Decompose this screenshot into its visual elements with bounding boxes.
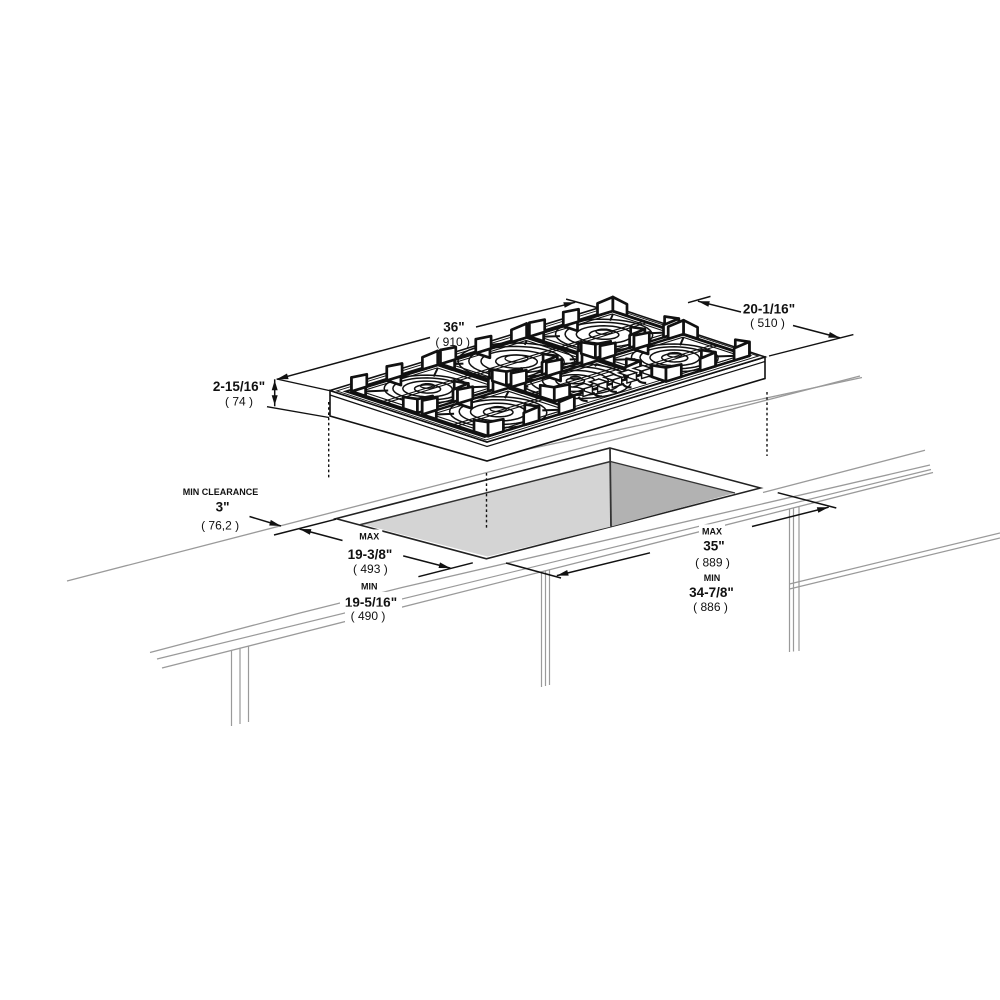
svg-text:MIN: MIN [361, 582, 378, 592]
svg-text:20-1/16": 20-1/16" [743, 302, 795, 317]
svg-text:MIN CLEARANCE: MIN CLEARANCE [183, 487, 259, 497]
svg-text:( 886 ): ( 886 ) [693, 600, 728, 614]
svg-text:MAX: MAX [359, 532, 379, 542]
svg-text:( 74 ): ( 74 ) [225, 394, 253, 408]
svg-text:( 910 ): ( 910 ) [435, 335, 470, 349]
svg-text:( 889 ): ( 889 ) [695, 556, 730, 570]
svg-text:2-15/16": 2-15/16" [213, 379, 265, 394]
svg-text:MIN: MIN [704, 573, 721, 583]
svg-text:( 76,2 ): ( 76,2 ) [201, 518, 239, 532]
svg-text:MAX: MAX [702, 527, 722, 537]
svg-text:( 490 ): ( 490 ) [351, 609, 386, 623]
svg-text:3": 3" [216, 499, 230, 514]
svg-text:35": 35" [703, 539, 724, 554]
svg-text:( 510 ): ( 510 ) [750, 316, 785, 330]
svg-text:36": 36" [443, 320, 464, 335]
svg-text:( 493 ): ( 493 ) [353, 562, 388, 576]
